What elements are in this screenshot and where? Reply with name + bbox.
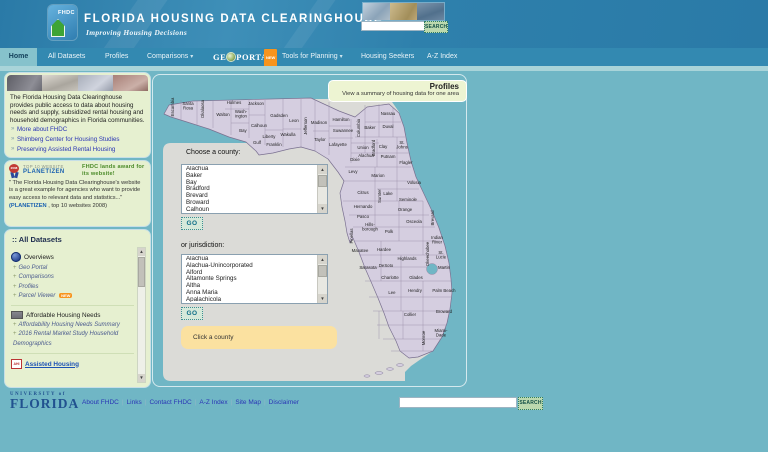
scroll-up-icon[interactable]: ▲ [318, 165, 327, 174]
main-content-panel: EscambiaSantaRosaOkaloosaWaltonHolmesWas… [152, 74, 467, 387]
divider [11, 353, 134, 354]
jurisdiction-options[interactable]: AlachuaAlachua-UnincorporatedAlfordAltam… [183, 256, 317, 302]
footer-links: About FHDC|Links|Contact FHDC|A-Z Index|… [82, 399, 299, 406]
scrollbar-thumb[interactable] [318, 175, 327, 187]
county-label-escambia[interactable]: Escambia [170, 97, 175, 116]
nav-tab-profiles[interactable]: Profiles [100, 48, 133, 66]
profiles-subtitle: View a summary of housing data for one a… [329, 91, 459, 97]
footer-link-disclaimer[interactable]: Disclaimer [269, 399, 299, 406]
click-county-hint-box: Click a county [181, 326, 337, 349]
dataset-section-assisted-housing[interactable]: AHIAssisted Housing [11, 359, 136, 369]
dataset-link-parcel-viewer[interactable]: +Parcel Viewer NEW [13, 292, 136, 301]
scroll-up-icon[interactable]: ▲ [318, 255, 327, 264]
award-credit-rest: , top 10 websites 2008) [47, 203, 107, 209]
separator: | [231, 399, 233, 406]
profiles-title: Profiles [329, 82, 459, 91]
footer-link-links[interactable]: Links [127, 399, 142, 406]
county-label-volusia[interactable]: Volusia [407, 180, 421, 185]
jurisdiction-list-scrollbar[interactable]: ▲ ▼ [317, 255, 327, 303]
nav-tab-geoportal[interactable]: GEPORTALNEW [208, 48, 279, 66]
datasets-scrollbar[interactable]: ▲ ▼ [137, 247, 146, 383]
award-year: 2008 [9, 164, 19, 173]
site-tagline: Improving Housing Decisions [86, 28, 187, 37]
award-quote: " The Florida Housing Data Clearinghouse… [9, 180, 146, 202]
county-label-hamilton[interactable]: Hamilton [333, 117, 351, 122]
photo-bridge [363, 3, 390, 20]
county-label-pasco[interactable]: Pasco [357, 214, 370, 219]
county-label-palmbeach[interactable]: Palm Beach [432, 288, 456, 293]
dataset-link-comparisons[interactable]: +Comparisons [13, 273, 136, 282]
photo-building [390, 3, 417, 20]
county-label-broward[interactable]: Broward [436, 309, 453, 314]
dataset-link-profiles[interactable]: +Profiles [13, 283, 136, 292]
award-box: 2008 TOP 10 WEBSITE PLANETIZEN FHDC land… [4, 160, 151, 227]
list-option-altamonte-springs[interactable]: Altamonte Springs [183, 276, 317, 283]
site-title: FLORIDA HOUSING DATA CLEARINGHOUSE [84, 13, 383, 25]
county-label-indian-river[interactable]: IndianRiver [431, 235, 443, 245]
county-label-seminole[interactable]: Seminole [399, 197, 418, 202]
county-label-union[interactable]: Union [357, 145, 369, 150]
separator: | [145, 399, 147, 406]
county-label-madison[interactable]: Madison [311, 120, 328, 125]
globe-icon [11, 252, 21, 262]
county-label-pinellas[interactable]: Pinellas [349, 228, 354, 243]
county-label-martin[interactable]: Martin [438, 265, 451, 270]
dataset-link-geo-portal[interactable]: +Geo Portal [13, 264, 136, 273]
dataset-heading[interactable]: Assisted Housing [25, 361, 79, 368]
nav-tab-tools-for-planning[interactable]: Tools for Planning▾ [277, 48, 348, 66]
county-label-calhoun[interactable]: Calhoun [251, 123, 268, 128]
county-label-okaloosa[interactable]: Okaloosa [200, 99, 205, 118]
county-label-lee[interactable]: Lee [388, 290, 396, 295]
county-label-citrus[interactable]: Citrus [357, 190, 368, 195]
list-option-alachua[interactable]: Alachua [183, 166, 317, 173]
county-label-charlotte[interactable]: Charlotte [381, 275, 399, 280]
county-label-lafayette[interactable]: Lafayette [329, 142, 347, 147]
county-label-brevard[interactable]: Brevard [430, 210, 435, 226]
university-of-florida-logo[interactable]: UNIVERSITY of FLORIDA [10, 392, 79, 412]
jurisdiction-listbox[interactable]: AlachuaAlachua-UnincorporatedAlfordAltam… [181, 254, 328, 304]
county-options[interactable]: AlachuaBakerBayBradfordBrevardBrowardCal… [183, 166, 317, 212]
county-label-osceola[interactable]: Osceola [406, 219, 422, 224]
footer-search-button[interactable]: SEARCH [518, 397, 543, 410]
county-label-columbia[interactable]: Columbia [356, 118, 361, 137]
dataset-link-2016-rental-market-study-household-demographics[interactable]: +2016 Rental Market Study Household Demo… [13, 330, 136, 349]
county-label-desoto[interactable]: DeSoto [379, 263, 394, 268]
arrow-bullet-icon: » [11, 146, 14, 154]
county-label-manatee[interactable]: Manatee [352, 248, 369, 253]
photo-plans [42, 75, 77, 91]
county-label-suwannee[interactable]: Suwannee [333, 128, 354, 133]
county-label-liberty[interactable]: Liberty [263, 134, 277, 139]
county-label-jackson[interactable]: Jackson [248, 101, 264, 106]
photo-highrise [78, 75, 113, 91]
list-option-apalachicola[interactable]: Apalachicola [183, 297, 317, 302]
ahi-icon: AHI [11, 359, 22, 369]
header: FHDC FLORIDA HOUSING DATA CLEARINGHOUSE … [0, 0, 768, 48]
intro-links: »More about FHDC»Shimberg Center for Hou… [7, 125, 148, 155]
county-label-wakulla[interactable]: Wakulla [280, 132, 296, 137]
county-label-duval[interactable]: Duval [383, 124, 394, 129]
intro-box: The Florida Housing Data Clearinghouse p… [4, 72, 151, 158]
jurisdiction-label: or jurisdiction: [181, 242, 224, 249]
county-label-miami--dade[interactable]: Miami-Dade [435, 328, 448, 338]
scrollbar-thumb[interactable] [138, 257, 145, 287]
arrow-bullet-icon: » [11, 126, 14, 134]
county-list-scrollbar[interactable]: ▲ ▼ [317, 165, 327, 213]
uf-logo-name: FLORIDA [10, 396, 79, 412]
photo-crowd [7, 75, 42, 91]
fhdc-logo[interactable]: FHDC [48, 5, 77, 40]
county-label-nassau[interactable]: Nassau [381, 111, 396, 116]
award-ribbon-icon: 2008 [9, 164, 20, 178]
building-icon [11, 311, 23, 319]
footer-link-site-map[interactable]: Site Map [235, 399, 261, 406]
profiles-header-box: Profiles View a summary of housing data … [328, 80, 467, 102]
list-option-baker[interactable]: Baker [183, 173, 317, 180]
new-badge: NEW [59, 293, 72, 298]
county-label-levy[interactable]: Levy [348, 169, 358, 174]
county-label-hendry[interactable]: Hendry [408, 288, 423, 293]
footer-search-input[interactable] [399, 397, 517, 408]
photo-brick-building [113, 75, 148, 91]
footer-link-contact-fhdc[interactable]: Contact FHDC [149, 399, 191, 406]
nav-bar: HomeAll DatasetsProfilesComparisons▾GEPO… [0, 48, 768, 66]
county-label-orange[interactable]: Orange [398, 207, 413, 212]
scroll-down-icon[interactable]: ▼ [138, 374, 145, 382]
award-credit: (PLANETIZEN , top 10 websites 2008) [9, 203, 146, 209]
county-label-highlands[interactable]: Highlands [397, 256, 416, 261]
scroll-down-icon[interactable]: ▼ [318, 204, 327, 213]
scroll-down-icon[interactable]: ▼ [318, 294, 327, 303]
house-icon [51, 19, 65, 37]
dataset-link-affordability-housing-needs-summary[interactable]: +Affordability Housing Needs Summary [13, 321, 136, 330]
divider [11, 305, 134, 306]
new-badge: NEW [264, 49, 276, 67]
go-county-button[interactable]: GO [181, 217, 203, 230]
dataset-section-overviews[interactable]: Overviews [11, 252, 136, 262]
county-label-baker[interactable]: Baker [364, 125, 376, 130]
county-label: Choose a county: [186, 149, 240, 156]
county-label-clay[interactable]: Clay [379, 144, 388, 149]
dataset-heading: Affordable Housing Needs [26, 312, 101, 319]
all-datasets-title: :: All Datasets [5, 230, 150, 247]
county-label-hernando[interactable]: Hernando [354, 204, 373, 209]
dataset-section-affordable-housing-needs[interactable]: Affordable Housing Needs [11, 311, 136, 319]
county-label-hardee[interactable]: Hardee [377, 247, 392, 252]
chevron-down-icon: ▾ [340, 54, 343, 60]
county-label-leon[interactable]: Leon [289, 118, 299, 123]
dataset-heading: Overviews [24, 254, 54, 261]
county-label-wash--ington[interactable]: Wash-ington [235, 109, 248, 119]
county-label-taylor[interactable]: Taylor [314, 137, 326, 142]
list-option-calhoun[interactable]: Calhoun [183, 207, 317, 212]
county-label-santa-rosa[interactable]: SantaRosa [182, 101, 194, 111]
nav-divider-strip [0, 66, 768, 71]
header-photo-strip [363, 3, 444, 20]
arrow-bullet-icon: » [11, 136, 14, 144]
footer-link-about-fhdc[interactable]: About FHDC [82, 399, 119, 406]
county-label-walton[interactable]: Walton [216, 112, 230, 117]
nav-tab-all-datasets[interactable]: All Datasets [43, 48, 90, 66]
county-label-jefferson[interactable]: Jefferson [303, 117, 308, 135]
all-datasets-list: Overviews+Geo Portal+Comparisons+Profile… [9, 247, 136, 383]
county-label-gulf[interactable]: Gulf [253, 140, 262, 145]
nav-tab-a-z-index[interactable]: A-Z Index [422, 48, 462, 66]
county-label-sarasota[interactable]: Sarasota [359, 265, 377, 270]
intro-link-more-about-fhdc[interactable]: »More about FHDC [7, 125, 148, 135]
chevron-down-icon: ▾ [190, 54, 193, 60]
scrollbar-thumb[interactable] [318, 265, 327, 277]
footer-link-a-z-index[interactable]: A-Z Index [199, 399, 227, 406]
county-label-marion[interactable]: Marion [371, 173, 385, 178]
county-label-lake[interactable]: Lake [383, 191, 393, 196]
county-label-monroe[interactable]: Monroe [421, 330, 426, 345]
globe-icon [227, 53, 235, 61]
county-label-putnam[interactable]: Putnam [381, 154, 396, 159]
separator: | [264, 399, 266, 406]
county-label-franklin[interactable]: Franklin [266, 142, 282, 147]
county-label-polk[interactable]: Polk [385, 229, 394, 234]
award-headline: FHDC lands award for its website! [82, 164, 146, 178]
fhdc-logo-label: FHDC [58, 10, 75, 16]
county-label-bay[interactable]: Bay [239, 128, 247, 133]
scroll-up-icon[interactable]: ▲ [138, 248, 145, 256]
intro-text: The Florida Housing Data Clearinghouse p… [7, 91, 148, 125]
county-label-glades[interactable]: Glades [409, 275, 423, 280]
all-datasets-box: :: All Datasets Overviews+Geo Portal+Com… [4, 229, 151, 388]
intro-link-shimberg-center-for-housing-studies[interactable]: »Shimberg Center for Housing Studies [7, 135, 148, 145]
county-label-holmes[interactable]: Holmes [227, 100, 242, 105]
sidebar-photo-strip [7, 75, 148, 91]
county-label-gadsden[interactable]: Gadsden [270, 113, 288, 118]
county-label-sumter[interactable]: Sumter [377, 189, 382, 203]
award-brand[interactable]: PLANETIZEN [23, 169, 82, 175]
header-search-button[interactable]: SEARCH [424, 21, 448, 33]
list-option-alachua-unincorporated[interactable]: Alachua-Unincorporated [183, 263, 317, 270]
nav-tab-home[interactable]: Home [0, 48, 37, 66]
separator: | [122, 399, 124, 406]
county-label-okeechobee[interactable]: Okeechobee [425, 241, 430, 266]
nav-tab-comparisons[interactable]: Comparisons▾ [142, 48, 198, 66]
photo-people [417, 3, 444, 20]
county-label-flagler[interactable]: Flagler [399, 160, 413, 165]
county-label-collier[interactable]: Collier [404, 312, 417, 317]
county-listbox[interactable]: AlachuaBakerBayBradfordBrevardBrowardCal… [181, 164, 328, 214]
hint-text: Click a county [181, 326, 337, 341]
award-credit-brand[interactable]: (PLANETIZEN [9, 203, 47, 209]
nav-tab-housing-seekers[interactable]: Housing Seekers [356, 48, 419, 66]
separator: | [195, 399, 197, 406]
go-jurisdiction-button[interactable]: GO [181, 307, 203, 320]
intro-link-preserving-assisted-rental-housing[interactable]: »Preserving Assisted Rental Housing [7, 145, 148, 155]
header-search-input[interactable] [361, 21, 427, 31]
county-label-alachua[interactable]: Alachua [358, 153, 374, 158]
